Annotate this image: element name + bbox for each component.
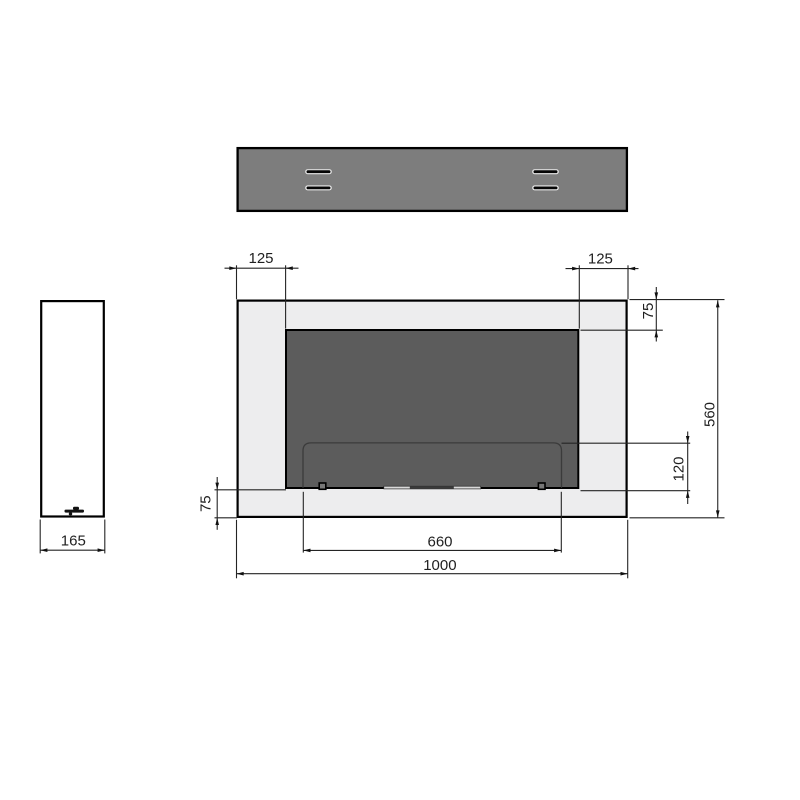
svg-text:75: 75 [640, 303, 657, 320]
svg-text:660: 660 [427, 533, 452, 550]
svg-text:75: 75 [197, 495, 214, 512]
svg-text:125: 125 [588, 251, 613, 268]
svg-text:560: 560 [702, 402, 719, 427]
svg-text:120: 120 [670, 456, 687, 481]
svg-text:1000: 1000 [423, 557, 456, 574]
svg-text:165: 165 [61, 532, 86, 549]
svg-text:125: 125 [248, 250, 273, 267]
